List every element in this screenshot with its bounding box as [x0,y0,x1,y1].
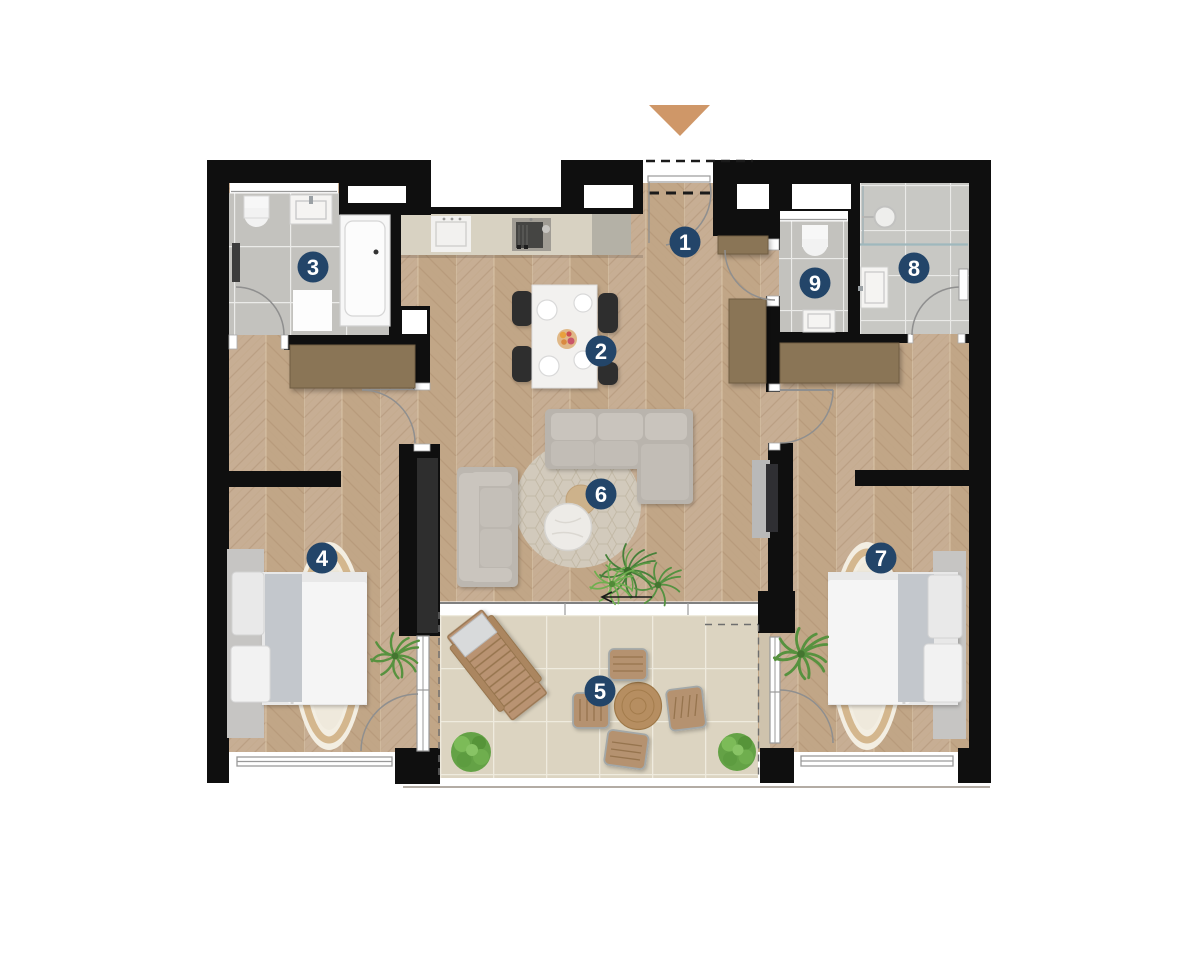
svg-text:8: 8 [908,256,920,281]
svg-text:3: 3 [307,255,319,280]
svg-text:4: 4 [316,546,329,571]
svg-text:6: 6 [595,482,607,507]
svg-text:7: 7 [875,546,887,571]
svg-text:2: 2 [595,339,607,364]
svg-text:9: 9 [809,271,821,296]
svg-text:1: 1 [679,230,691,255]
svg-text:5: 5 [594,679,606,704]
